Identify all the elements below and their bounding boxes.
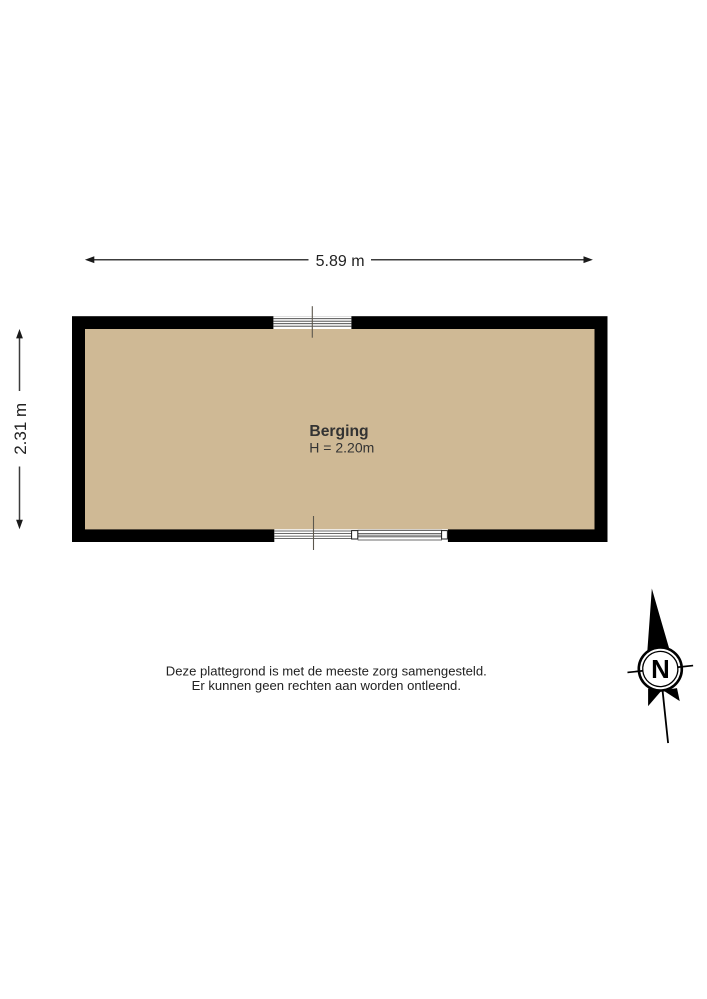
svg-text:2.31 m: 2.31 m bbox=[11, 403, 30, 455]
svg-text:Er kunnen geen rechten aan wor: Er kunnen geen rechten aan worden ontlee… bbox=[192, 678, 461, 693]
svg-text:H = 2.20m: H = 2.20m bbox=[309, 439, 374, 455]
svg-text:N: N bbox=[651, 656, 670, 684]
svg-text:Berging: Berging bbox=[309, 423, 368, 440]
svg-text:Deze plattegrond is met de mee: Deze plattegrond is met de meeste zorg s… bbox=[166, 663, 487, 678]
svg-text:5.89 m: 5.89 m bbox=[316, 253, 365, 270]
